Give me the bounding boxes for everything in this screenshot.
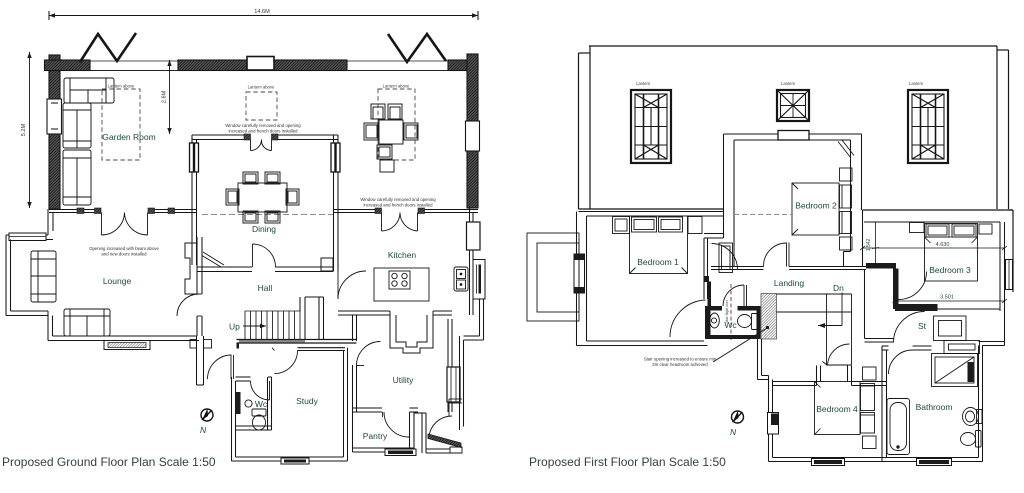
svg-text:Bedroom 1: Bedroom 1 — [637, 257, 679, 267]
svg-text:Up: Up — [229, 322, 240, 332]
svg-text:Window carefully removed and o: Window carefully removed and opening — [360, 197, 436, 202]
svg-text:2.6M: 2.6M — [162, 90, 168, 103]
svg-text:Bedroom 3: Bedroom 3 — [929, 265, 971, 275]
svg-text:Pantry: Pantry — [363, 431, 388, 441]
svg-text:Kitchen: Kitchen — [388, 250, 417, 260]
svg-text:Lantern: Lantern — [909, 81, 924, 86]
svg-text:Study: Study — [296, 396, 318, 406]
svg-text:Bedroom 4: Bedroom 4 — [816, 404, 858, 414]
svg-text:Garden Room: Garden Room — [102, 132, 155, 142]
svg-text:Window carefully removed and o: Window carefully removed and opening — [225, 123, 301, 128]
svg-text:Lounge: Lounge — [103, 276, 132, 286]
svg-text:14.6M: 14.6M — [254, 9, 270, 15]
svg-text:and new doors installed: and new doors installed — [101, 252, 147, 257]
svg-text:Lantern above: Lantern above — [108, 84, 135, 89]
svg-text:Lantern: Lantern — [636, 81, 651, 86]
svg-text:Proposed First Floor Plan Scal: Proposed First Floor Plan Scale 1:50 — [529, 455, 726, 469]
svg-text:N: N — [730, 427, 737, 437]
svg-text:Opening increased with beam ab: Opening increased with beam above — [89, 246, 159, 251]
svg-text:2m clear headroom achieved: 2m clear headroom achieved — [652, 362, 708, 367]
svg-text:Bathroom: Bathroom — [916, 402, 953, 412]
svg-text:Wc: Wc — [255, 399, 268, 409]
svg-text:N: N — [200, 425, 207, 435]
svg-text:St: St — [918, 321, 927, 331]
svg-text:Lantern above: Lantern above — [248, 85, 275, 90]
svg-text:5.2M: 5.2M — [21, 123, 27, 136]
svg-text:Stair opening increased to ens: Stair opening increased to ensure min — [644, 357, 717, 362]
svg-text:increased and french doors ins: increased and french doors installed — [363, 203, 433, 208]
svg-text:Lantern: Lantern — [781, 81, 796, 86]
svg-text:Hall: Hall — [258, 283, 273, 293]
svg-text:Wc: Wc — [724, 320, 737, 330]
svg-text:1.542: 1.542 — [866, 239, 872, 252]
svg-text:Utility: Utility — [393, 375, 415, 385]
svg-text:Bedroom 2: Bedroom 2 — [795, 201, 837, 211]
svg-text:3.501: 3.501 — [940, 295, 954, 301]
svg-text:Landing: Landing — [774, 278, 805, 288]
svg-text:Dn: Dn — [833, 283, 844, 293]
svg-text:Dining: Dining — [252, 224, 276, 234]
svg-text:Lantern above: Lantern above — [383, 84, 410, 89]
svg-text:Proposed Ground Floor Plan Sca: Proposed Ground Floor Plan Scale 1:50 — [2, 455, 216, 469]
svg-text:4.630: 4.630 — [936, 242, 950, 248]
svg-text:increased and french doors ins: increased and french doors installed — [228, 129, 298, 134]
